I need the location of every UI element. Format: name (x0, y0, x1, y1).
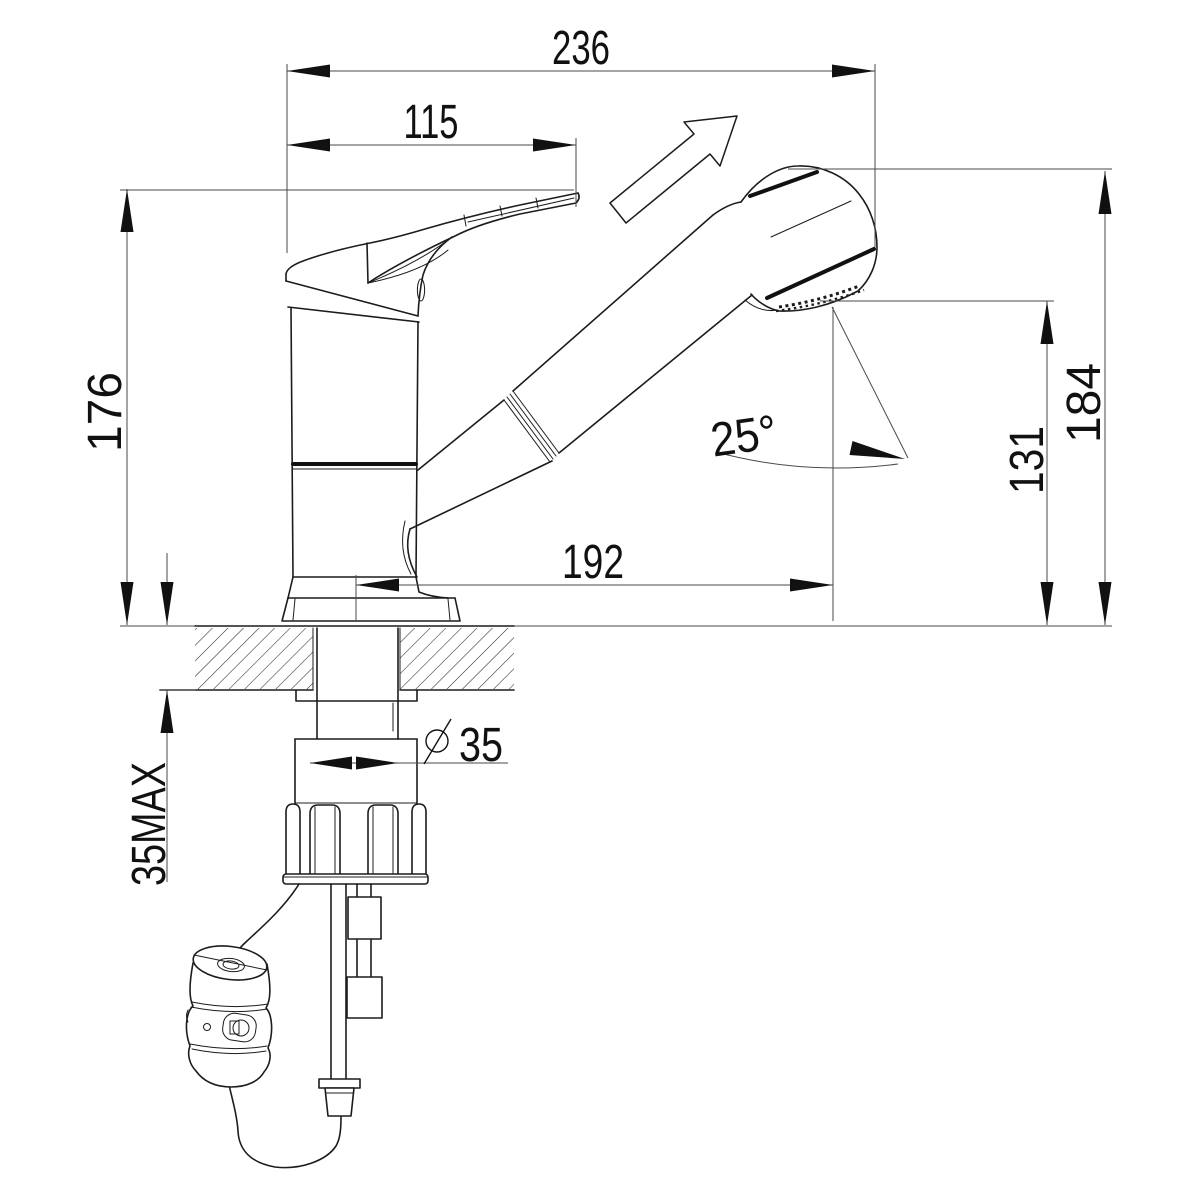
dim-handle-reach: 115 (287, 96, 576, 152)
dim-spout-reach: 192 (356, 536, 833, 592)
mounting-nut (283, 803, 428, 884)
dim-max-counter-thickness-label: 35MAX (123, 762, 176, 886)
dim-mounting-hole: 35 (310, 719, 508, 772)
dimension-annotations: 236 115 176 184 131 (79, 22, 1112, 886)
dim-height-to-spray-top-label: 184 (1058, 363, 1111, 443)
spout-base (403, 400, 552, 577)
dim-overall-projection: 236 (287, 22, 875, 78)
dim-spray-angle-label: 25° (707, 406, 780, 468)
dim-height-to-outlet: 131 (1001, 301, 1054, 625)
faucet-body (282, 281, 460, 621)
tube-block-lower (347, 977, 382, 1018)
counterweight (186, 942, 271, 1087)
dim-handle-reach-label: 115 (404, 96, 459, 149)
countertop-hatch-right (400, 628, 514, 689)
dim-spout-reach-label: 192 (562, 536, 624, 589)
page: 236 115 176 184 131 (0, 0, 1200, 1200)
dim-height-to-outlet-label: 131 (1001, 426, 1054, 494)
dim-height-to-handle-label: 176 (79, 372, 132, 452)
tube-block-upper (348, 897, 381, 939)
faucet-handle (286, 193, 579, 316)
spray-head (741, 166, 877, 311)
dim-max-counter-thickness: 35MAX (123, 582, 176, 886)
hose-connector-flange (319, 1079, 360, 1088)
spray-head-top-seam (750, 172, 817, 196)
dim-height-to-spray-top: 184 (1058, 171, 1112, 625)
countertop-section (120, 626, 1112, 690)
mounting-hardware (186, 628, 428, 1168)
spout-joint-ring (504, 391, 559, 462)
countertop-hatch-left (195, 628, 313, 689)
faucet-technical-drawing: 236 115 176 184 131 (0, 0, 1200, 1200)
extension-lines (120, 64, 1112, 882)
diameter-symbol-icon (424, 719, 451, 764)
dim-height-to-handle: 176 (79, 189, 134, 625)
supply-tubes (319, 884, 382, 1116)
dim-mounting-hole-label: 35 (459, 719, 503, 772)
pullout-direction-arrow-icon (610, 116, 737, 223)
hose-connector (325, 1088, 354, 1116)
dim-overall-projection-label: 236 (552, 22, 610, 75)
dim-spray-angle: 25° (707, 307, 908, 468)
